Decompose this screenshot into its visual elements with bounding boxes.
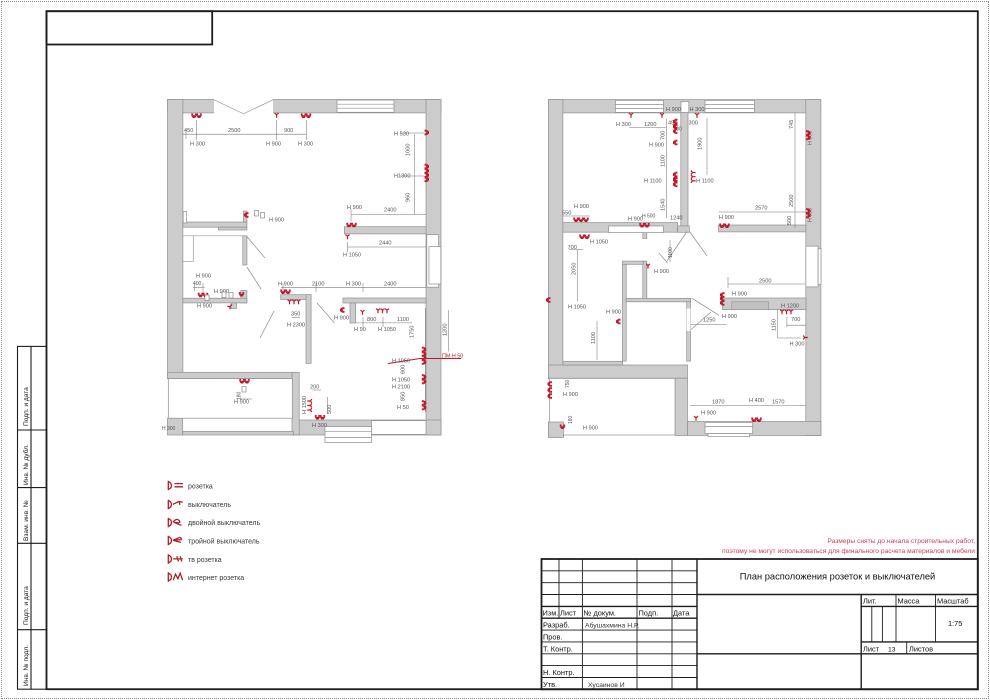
svg-text:200: 200 <box>310 385 319 391</box>
svg-text:Взам. инв. №: Взам. инв. № <box>23 500 30 541</box>
svg-text:Н 900: Н 900 <box>719 215 734 221</box>
svg-text:Н 300: Н 300 <box>162 426 176 432</box>
svg-text:350: 350 <box>291 312 300 318</box>
svg-text:Н 530: Н 530 <box>394 132 409 138</box>
svg-text:ПМ Н 50: ПМ Н 50 <box>442 354 463 360</box>
svg-text:Лист: Лист <box>560 609 577 618</box>
svg-text:Н 90: Н 90 <box>354 327 366 333</box>
svg-text:13: 13 <box>888 647 896 654</box>
svg-text:Н 300: Н 300 <box>616 122 631 128</box>
svg-text:1540: 1540 <box>661 199 667 211</box>
svg-text:Н 900: Н 900 <box>234 400 249 406</box>
svg-text:Н 2300: Н 2300 <box>287 323 305 329</box>
svg-text:Н 300: Н 300 <box>790 342 805 348</box>
svg-text:Н 1050: Н 1050 <box>590 239 608 245</box>
svg-text:1870: 1870 <box>712 400 724 406</box>
svg-text:Н 900: Н 900 <box>197 304 212 310</box>
svg-text:600: 600 <box>401 365 407 374</box>
svg-text:Н 900: Н 900 <box>196 274 211 280</box>
svg-text:Н 900: Н 900 <box>214 289 229 295</box>
svg-text:800: 800 <box>367 317 376 323</box>
svg-text:интернет розетка: интернет розетка <box>188 575 244 582</box>
svg-text:Н 900: Н 900 <box>701 411 716 417</box>
svg-text:Листов: Листов <box>909 645 933 654</box>
svg-text:Н 900: Н 900 <box>278 282 293 288</box>
svg-text:1100: 1100 <box>661 155 667 167</box>
svg-text:550: 550 <box>562 211 571 217</box>
svg-text:180: 180 <box>568 415 574 424</box>
svg-text:тройной выключатель: тройной выключатель <box>188 538 260 546</box>
svg-text:поэтому не могут использоватьс: поэтому не могут использоваться для фина… <box>722 547 975 555</box>
svg-text:2500: 2500 <box>228 128 240 134</box>
svg-text:700: 700 <box>568 245 577 251</box>
svg-text:Н 900: Н 900 <box>266 142 281 148</box>
svg-text:850: 850 <box>401 392 407 401</box>
svg-text:Н 1100: Н 1100 <box>696 179 714 185</box>
svg-text:900: 900 <box>284 128 293 134</box>
svg-text:1750: 1750 <box>410 326 416 338</box>
svg-text:Н 50: Н 50 <box>397 405 409 411</box>
svg-text:1900: 1900 <box>698 138 704 150</box>
svg-text:Инв. № дубл.: Инв. № дубл. <box>22 444 30 485</box>
svg-text:960: 960 <box>406 193 412 202</box>
svg-text:2400: 2400 <box>384 208 396 214</box>
svg-text:Изм.: Изм. <box>543 609 559 618</box>
svg-text:Н 300: Н 300 <box>690 107 705 113</box>
svg-text:2400: 2400 <box>384 282 396 288</box>
svg-text:2500: 2500 <box>759 279 771 285</box>
svg-text:Подп.: Подп. <box>639 609 659 618</box>
svg-text:Н 900: Н 900 <box>563 392 578 398</box>
svg-text:Н 2100: Н 2100 <box>392 385 410 391</box>
svg-text:№ докум.: № докум. <box>584 609 616 618</box>
svg-text:700: 700 <box>791 317 800 323</box>
svg-text:Н 900: Н 900 <box>732 292 747 298</box>
svg-text:Лит.: Лит. <box>863 597 877 606</box>
svg-text:Н 1050: Н 1050 <box>392 359 410 365</box>
svg-text:Н 500: Н 500 <box>642 214 656 220</box>
svg-text:Н 1100: Н 1100 <box>644 179 662 185</box>
svg-text:700: 700 <box>661 131 667 140</box>
svg-text:Н 900: Н 900 <box>347 205 362 211</box>
svg-text:400: 400 <box>193 281 202 287</box>
svg-text:Н 900: Н 900 <box>654 269 669 275</box>
svg-text:1:75: 1:75 <box>948 619 962 628</box>
svg-text:1200: 1200 <box>443 324 449 336</box>
svg-text:Разраб.: Разраб. <box>543 621 570 630</box>
svg-text:1100: 1100 <box>397 317 409 323</box>
svg-text:2440: 2440 <box>379 241 391 247</box>
svg-text:500: 500 <box>327 405 333 414</box>
svg-text:Н 900: Н 900 <box>649 143 664 149</box>
svg-text:План расположения розеток и вы: План расположения розеток и выключателей <box>740 572 936 582</box>
svg-text:Н 300: Н 300 <box>190 142 205 148</box>
svg-text:300: 300 <box>689 121 698 127</box>
svg-text:1000: 1000 <box>406 144 412 156</box>
svg-text:Н 1050: Н 1050 <box>378 327 396 333</box>
svg-text:Н 900: Н 900 <box>334 316 349 322</box>
svg-text:Н 300: Н 300 <box>346 282 361 288</box>
svg-text:розетка: розетка <box>188 484 213 491</box>
svg-text:2050: 2050 <box>572 263 578 275</box>
svg-text:750: 750 <box>565 379 571 388</box>
svg-text:2570: 2570 <box>755 206 767 212</box>
svg-text:1100: 1100 <box>591 332 597 344</box>
svg-text:Утв.: Утв. <box>543 680 557 689</box>
svg-text:Н 400: Н 400 <box>749 398 764 404</box>
svg-text:выключатель: выключатель <box>188 502 231 509</box>
svg-text:Н 900: Н 900 <box>628 217 643 223</box>
svg-text:1250: 1250 <box>703 318 715 324</box>
svg-text:Т. Контр.: Т. Контр. <box>543 645 573 654</box>
svg-text:Лист: Лист <box>863 645 880 654</box>
svg-text:Инв. № подл.: Инв. № подл. <box>23 645 30 686</box>
svg-text:1200: 1200 <box>644 122 656 128</box>
svg-text:450: 450 <box>184 128 193 134</box>
svg-text:двойной выключатель: двойной выключатель <box>188 519 260 527</box>
svg-text:Н. Контр.: Н. Контр. <box>543 668 575 677</box>
svg-text:Н1300: Н1300 <box>394 174 410 180</box>
svg-text:Дата: Дата <box>673 609 690 618</box>
svg-text:Н 1050: Н 1050 <box>392 378 410 384</box>
svg-text:Н 900: Н 900 <box>606 310 621 316</box>
svg-text:500: 500 <box>787 216 793 225</box>
svg-text:тв розетка: тв розетка <box>188 557 222 564</box>
svg-text:Абушахмина Н.Р.: Абушахмина Н.Р. <box>585 622 639 630</box>
svg-text:Подп. и дата: Подп. и дата <box>23 586 30 625</box>
svg-text:Н 900: Н 900 <box>269 218 284 224</box>
svg-text:Н 300: Н 300 <box>298 142 313 148</box>
svg-text:Размеры сняты до начала строит: Размеры сняты до начала строительных раб… <box>827 537 975 545</box>
svg-text:Н 1050: Н 1050 <box>568 305 586 311</box>
svg-text:2100: 2100 <box>312 282 324 288</box>
svg-text:Н 900: Н 900 <box>722 314 737 320</box>
svg-text:Пров.: Пров. <box>543 633 563 642</box>
svg-text:Н 1500: Н 1500 <box>302 396 308 414</box>
svg-text:Н 1200: Н 1200 <box>781 304 799 310</box>
svg-text:Н 300: Н 300 <box>312 423 327 429</box>
svg-text:1240: 1240 <box>670 216 682 222</box>
svg-text:1100: 1100 <box>668 247 674 258</box>
svg-text:Н 1050: Н 1050 <box>343 253 361 259</box>
svg-text:745: 745 <box>789 120 795 129</box>
svg-text:Масса: Масса <box>898 597 921 606</box>
svg-text:Масштаб: Масштаб <box>937 597 969 606</box>
svg-text:Хусаинов И: Хусаинов И <box>588 682 625 689</box>
svg-text:Н 900: Н 900 <box>574 204 589 210</box>
svg-text:Н 900: Н 900 <box>666 107 681 113</box>
svg-text:1570: 1570 <box>772 400 784 406</box>
svg-text:Н 900: Н 900 <box>583 426 598 432</box>
svg-text:2500: 2500 <box>789 195 795 207</box>
svg-text:1150: 1150 <box>772 319 778 331</box>
svg-text:Подп. и дата: Подп. и дата <box>23 387 30 426</box>
